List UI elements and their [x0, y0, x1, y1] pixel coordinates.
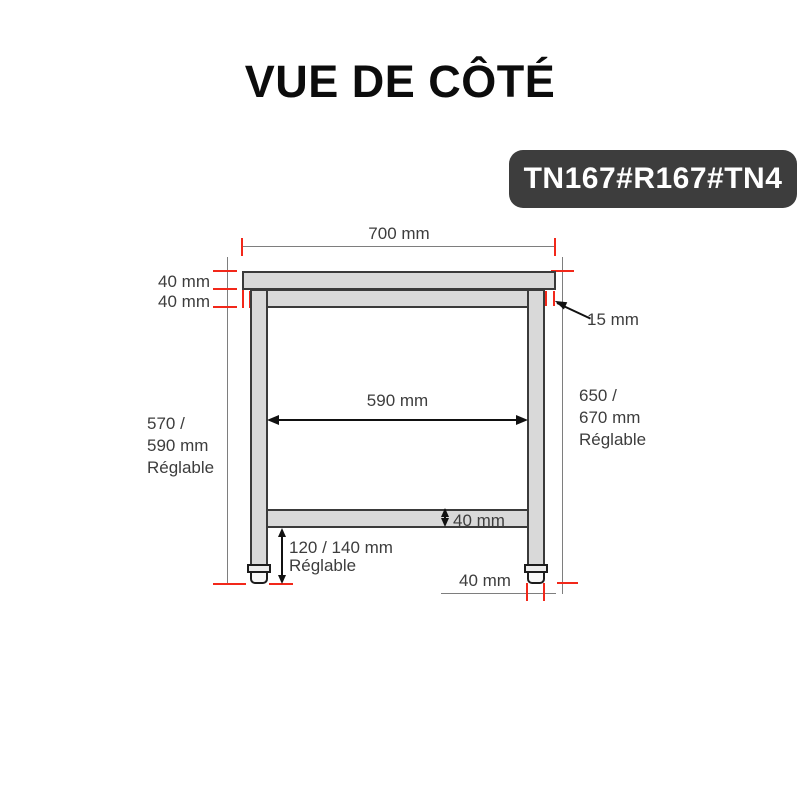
overhang-arrowhead [553, 297, 567, 309]
product-code-badge: TN167#R167#TN4 [509, 150, 797, 208]
foot-clearance-label: 120 / 140 mm Réglable [289, 539, 393, 575]
right-height-label: 650 / 670 mm Réglable [579, 385, 646, 451]
red-tick-apron-bottom [213, 306, 237, 308]
left-foot-pad [250, 571, 268, 584]
page-title: VUE DE CÔTÉ [0, 56, 800, 108]
red-tick-right-leg-edge [545, 291, 547, 306]
tabletop-thickness-label: 40 mm [130, 274, 210, 290]
side-view-page: VUE DE CÔTÉ TN167#R167#TN4 700 mm 40 mm [0, 0, 800, 800]
red-tick-tabletop-bottom [213, 288, 237, 290]
right-foot-pad [527, 571, 545, 584]
right-leg [527, 289, 545, 566]
inner-width-arrowhead-right [516, 415, 528, 425]
red-tick-left-edge [242, 289, 244, 308]
dimension-line-leg-width [441, 593, 556, 594]
apron-thickness-label: 40 mm [130, 294, 210, 310]
red-tick-foot-right-edge [543, 583, 545, 601]
top-width-label: 700 mm [242, 226, 556, 242]
shelf-thickness-label: 40 mm [453, 513, 505, 529]
left-height-label: 570 / 590 mm Réglable [147, 413, 214, 479]
red-ground-line-left-a [213, 583, 246, 585]
red-tick-tabletop-top [213, 270, 237, 272]
leg-width-label: 40 mm [459, 573, 511, 589]
foot-clearance-arrowhead-down [278, 575, 286, 584]
red-ground-line-right [557, 582, 578, 584]
inner-width-arrow-line [278, 419, 517, 421]
apron [266, 289, 529, 308]
inner-width-label: 590 mm [268, 393, 527, 409]
foot-clearance-arrow-line [281, 535, 283, 577]
red-tick-foot-left-edge [526, 583, 528, 601]
tabletop [242, 271, 556, 290]
product-code-text: TN167#R167#TN4 [524, 162, 783, 196]
shelf-thickness-arrowhead-down [441, 518, 449, 527]
edge-overhang-label: 15 mm [587, 312, 639, 328]
dimension-line-top-width [242, 246, 556, 247]
